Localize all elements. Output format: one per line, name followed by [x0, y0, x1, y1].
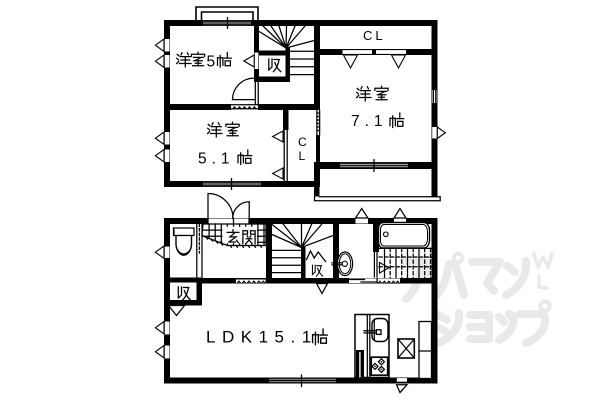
svg-text:C: C: [298, 135, 307, 149]
svg-text:LDK15.1: LDK15.1: [206, 328, 318, 347]
svg-text:L: L: [299, 149, 306, 163]
svg-text:CL: CL: [363, 28, 386, 43]
svg-text:5: 5: [207, 54, 216, 71]
svg-text:7.1: 7.1: [351, 113, 388, 130]
svg-text:5.1: 5.1: [198, 151, 235, 168]
